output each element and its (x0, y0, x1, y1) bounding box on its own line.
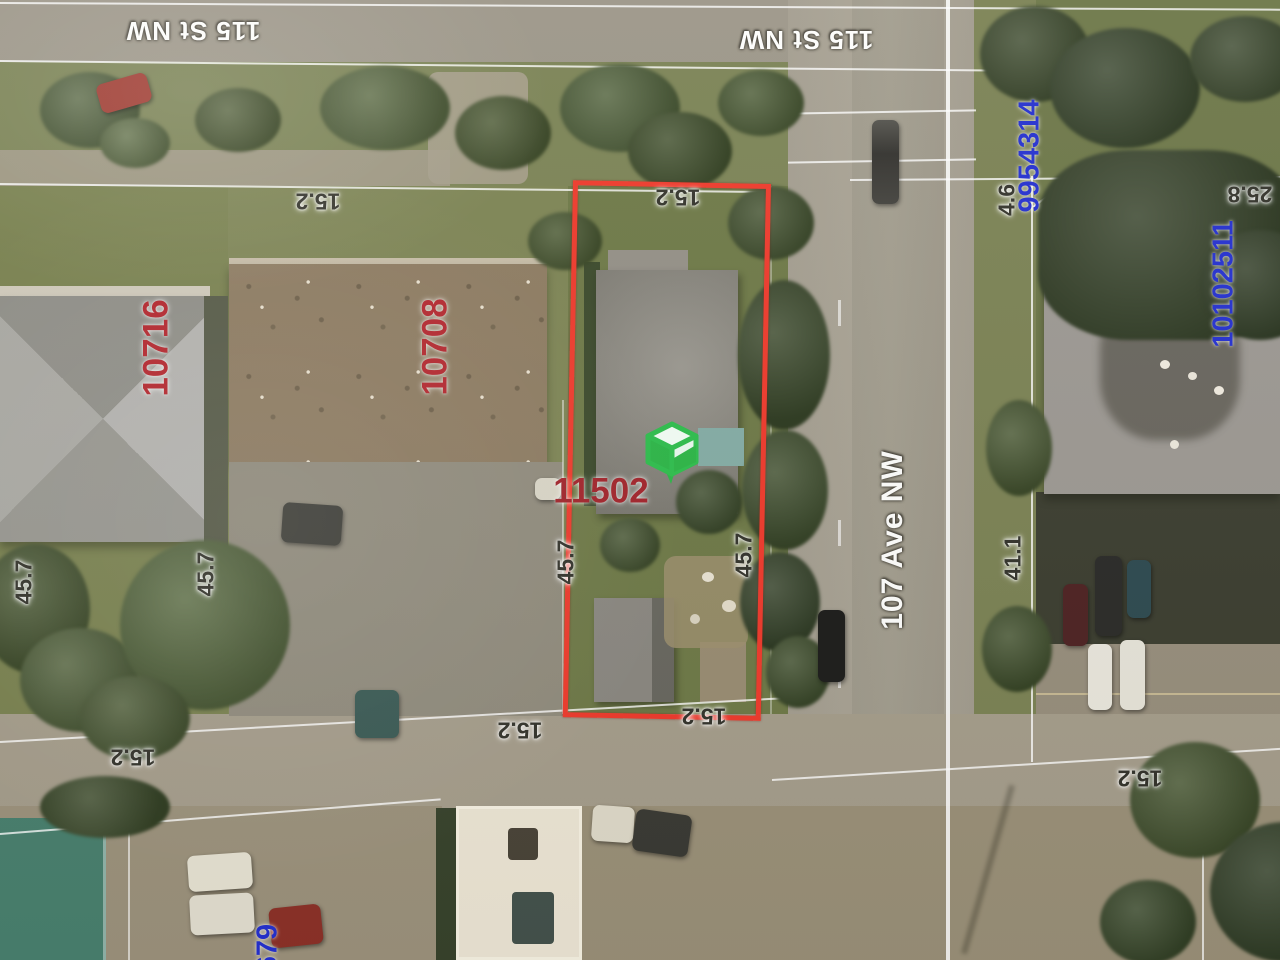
tree (100, 118, 170, 168)
roof-vent-2 (1160, 360, 1170, 369)
address-label-10708: 10708 (418, 298, 453, 395)
dim-45-7-subject-east: 45.7 (733, 533, 756, 578)
building-10708-roof (229, 264, 547, 462)
parking-tan-line (1036, 693, 1280, 695)
roof-vent-3 (1188, 372, 1197, 380)
car-parked-white-1 (1088, 644, 1112, 710)
tree (718, 70, 804, 136)
car-white-bl-2 (189, 892, 255, 935)
car-road-north (872, 120, 899, 204)
car-white-bl-1 (187, 852, 253, 892)
tree (320, 66, 450, 150)
tree (986, 400, 1052, 496)
tree (455, 96, 551, 170)
car-parked-teal (1127, 560, 1151, 618)
tree (628, 112, 732, 190)
lane-dash-2 (838, 520, 841, 546)
car-teal-midlot (355, 690, 399, 738)
roof-vent-5 (1170, 440, 1179, 449)
tree (1050, 28, 1200, 148)
car-parked-white-2 (1120, 640, 1145, 710)
dim-15-2-bottom-left: 15.2 (498, 719, 543, 742)
parcel-id-10102511: 10102511 (1210, 220, 1239, 347)
dim-45-7-left-inner: 45.7 (195, 552, 218, 597)
sidewalk-strip (0, 150, 450, 186)
aerial-parcel-map: 115 St NW 115 St NW 107 Ave NW 10716 107… (0, 0, 1280, 960)
dim-45-7-subject-west: 45.7 (555, 540, 578, 585)
street-label-115st-right: 115 St NW (739, 27, 874, 53)
dim-15-2-top-left: 15.2 (296, 190, 341, 213)
car-white-bottom-mid (591, 805, 635, 844)
car-dark-midlot (281, 502, 344, 546)
car-dark-bottom-mid (631, 808, 692, 857)
address-label-10716: 10716 (139, 299, 174, 396)
dim-15-2-subject-top: 15.2 (656, 186, 701, 209)
dim-4-6-boulevard: 4.6 (996, 184, 1019, 216)
car-parked-black (1095, 556, 1122, 636)
dim-15-2-bottom-far-left: 15.2 (111, 746, 156, 769)
bottom-street-surface (0, 714, 1280, 810)
dim-15-2-bottom-right: 15.2 (1118, 767, 1163, 790)
tree (982, 606, 1052, 692)
bottom-building-unit (512, 892, 554, 944)
dim-25-8-right: 25.8 (1228, 183, 1273, 206)
dim-45-7-left-outer: 45.7 (13, 560, 36, 605)
car-road-south (818, 610, 845, 682)
right-parking-light (1036, 644, 1280, 720)
lane-dash-1 (838, 300, 841, 326)
road-edge-line (946, 0, 950, 960)
tree (40, 776, 170, 838)
street-label-115st-left: 115 St NW (126, 18, 261, 44)
teal-roof-corner (0, 818, 106, 960)
driveway-shadow-strip (204, 296, 228, 548)
parcel-id-679-partial: 679 (254, 924, 283, 960)
parcel-line-bottom-vert-left (128, 820, 130, 960)
tree (1100, 880, 1196, 960)
subject-property-cube-marker[interactable] (640, 418, 704, 484)
street-label-107ave: 107 Ave NW (878, 450, 908, 630)
car-parked-darkred (1063, 584, 1088, 646)
bottom-building-vent (508, 828, 538, 860)
bottom-hedge (436, 808, 456, 960)
parcel-id-9954314: 9954314 (1016, 100, 1045, 213)
tree (195, 88, 281, 152)
dim-41-1-right: 41.1 (1002, 536, 1025, 581)
roof-vent-4 (1214, 386, 1224, 395)
dim-15-2-subject-bottom: 15.2 (682, 705, 727, 728)
address-label-11502: 11502 (553, 474, 648, 509)
